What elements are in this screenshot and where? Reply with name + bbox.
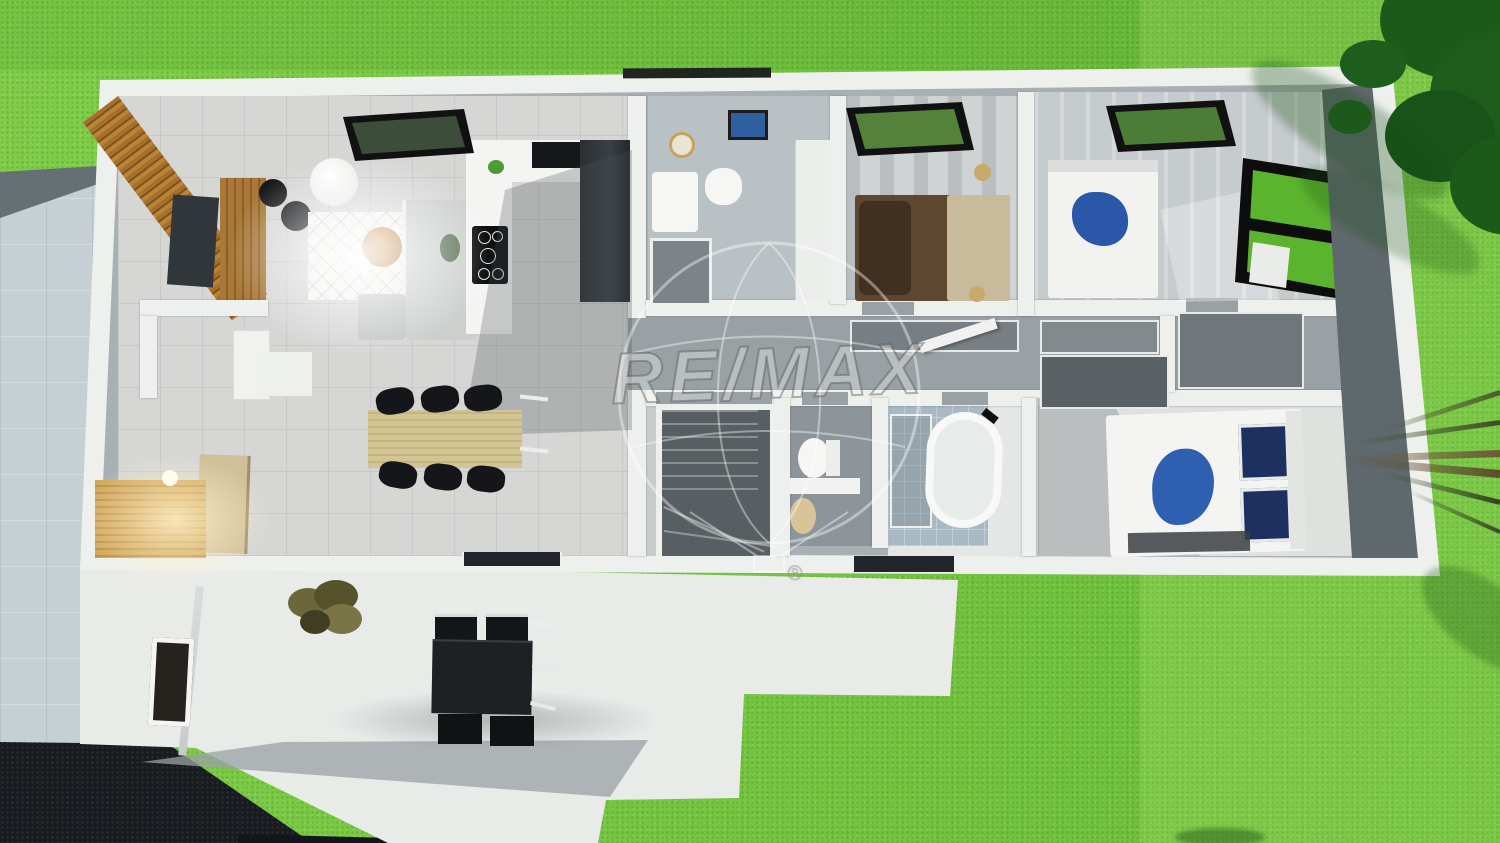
bath1-toilet bbox=[705, 168, 742, 205]
terrace-chair bbox=[490, 716, 534, 746]
roof-vent-strip bbox=[623, 68, 771, 79]
nightstand-lamp bbox=[974, 164, 991, 181]
burner bbox=[478, 231, 491, 244]
bed1-blanket bbox=[947, 195, 1010, 301]
chair-armrest bbox=[530, 701, 556, 711]
bathtub bbox=[924, 411, 1004, 530]
nightstand-lamp bbox=[969, 286, 985, 302]
bed2-headboard bbox=[1048, 160, 1158, 172]
hall-closet bbox=[1040, 320, 1159, 354]
entry-mat-wood bbox=[95, 480, 206, 558]
terrace-dining-set bbox=[420, 608, 560, 748]
bed3-closet bbox=[1040, 355, 1169, 409]
door-opening bbox=[628, 318, 662, 390]
entry-lamp bbox=[162, 470, 178, 486]
side-ball bbox=[352, 256, 370, 274]
bed1 bbox=[855, 195, 1010, 301]
bath1-cabinet bbox=[795, 140, 831, 300]
canopy-leaf bbox=[1340, 40, 1406, 88]
wall-wc-bath2 bbox=[872, 398, 888, 548]
kitchen-plant bbox=[488, 160, 504, 174]
bath1-window bbox=[728, 110, 768, 140]
wc-plant bbox=[790, 498, 816, 534]
stair-winder-line bbox=[663, 506, 764, 553]
entry-partition bbox=[140, 300, 268, 316]
wc-toilet-tank bbox=[826, 440, 840, 476]
kitchen-sink bbox=[532, 142, 582, 168]
terrace-sliding-door bbox=[462, 552, 562, 566]
terrace-door-2 bbox=[852, 556, 956, 572]
bath1-vanity bbox=[652, 172, 698, 232]
palm-fronds bbox=[1388, 360, 1500, 570]
door-opening bbox=[802, 392, 848, 405]
pendant-light bbox=[259, 179, 287, 207]
annex-window bbox=[148, 637, 195, 727]
shrub-cluster bbox=[300, 610, 330, 634]
entry-shelf bbox=[256, 352, 312, 396]
grass-tuft-shadow bbox=[1175, 828, 1265, 843]
terrace-table bbox=[431, 639, 532, 715]
bed3-blue-blanket bbox=[1151, 448, 1216, 526]
bed1-pillows bbox=[859, 201, 911, 295]
wc-vanity bbox=[790, 478, 860, 494]
tv-panel bbox=[167, 195, 219, 288]
bath1-shower bbox=[650, 238, 712, 306]
floorplan-render: RE/MAX ® bbox=[0, 0, 1500, 843]
plant-vase bbox=[440, 234, 460, 262]
pendant-light bbox=[281, 201, 311, 231]
bed2-blue-blanket bbox=[1072, 192, 1128, 246]
dining-table bbox=[368, 410, 522, 468]
bed3-rug bbox=[1128, 531, 1250, 553]
chair-armrest bbox=[528, 620, 554, 628]
bed2 bbox=[1048, 160, 1158, 298]
sofa-chaise bbox=[358, 294, 406, 340]
bed3-navy-pillow bbox=[1238, 423, 1290, 481]
terrace-chair bbox=[438, 714, 482, 744]
hall-closet bbox=[1178, 312, 1304, 389]
door-opening bbox=[862, 302, 914, 315]
ball-lamp bbox=[310, 158, 358, 206]
door-opening bbox=[942, 392, 988, 405]
wall-bed1-bed2 bbox=[1018, 92, 1034, 316]
entry-partition bbox=[140, 316, 157, 398]
bathtub-basin bbox=[932, 419, 995, 521]
burner bbox=[478, 268, 490, 280]
wall-bath2-bed3 bbox=[1022, 398, 1038, 556]
wall-bath1-bed1 bbox=[830, 96, 846, 304]
round-mirror bbox=[669, 132, 695, 158]
chair-armrest bbox=[532, 663, 558, 672]
stair-steps bbox=[662, 410, 758, 494]
terrace-shrub bbox=[288, 580, 372, 642]
wall-stairs-wc bbox=[774, 398, 790, 556]
staircase bbox=[656, 404, 776, 562]
